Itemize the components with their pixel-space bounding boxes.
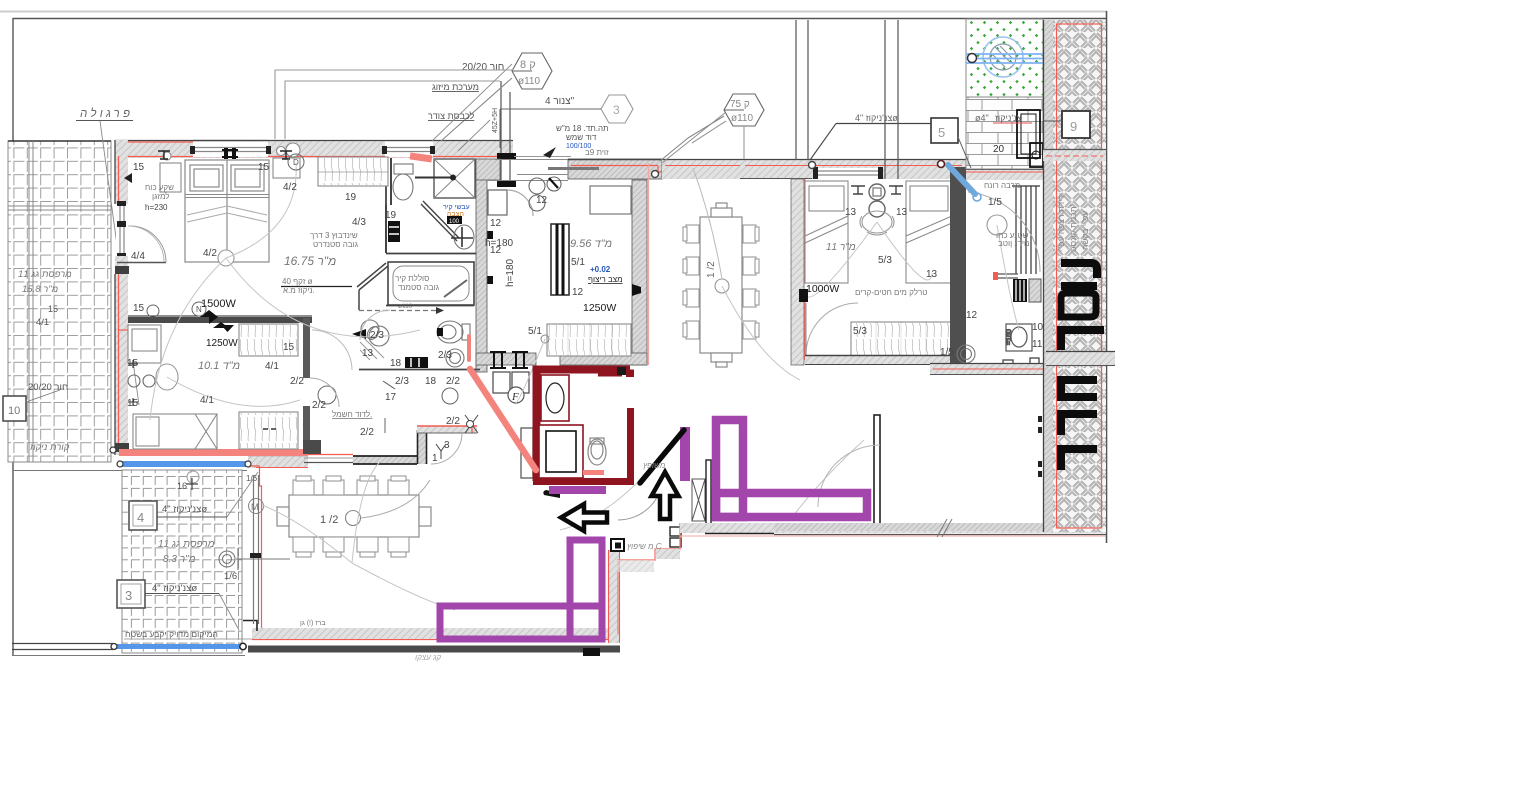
- svg-text:h=180: h=180: [505, 258, 516, 287]
- svg-text:ø4": ø4": [975, 113, 989, 123]
- svg-text:קורת ניקוז: קורת ניקוז: [30, 442, 70, 453]
- svg-text:מ"ר 16.75: מ"ר 16.75: [284, 254, 336, 268]
- svg-text:5/1: 5/1: [528, 326, 542, 337]
- svg-text:מרפסת גג 11: מרפסת גג 11: [158, 539, 215, 550]
- svg-text:12: 12: [966, 310, 978, 321]
- svg-text:18: 18: [425, 376, 437, 387]
- svg-text:1/5: 1/5: [940, 347, 954, 358]
- svg-text:עפ"י בקשה: עפ"י בקשה: [1080, 211, 1090, 250]
- svg-text:קג עצקו: קג עצקו: [415, 653, 441, 662]
- svg-text:13: 13: [845, 207, 857, 218]
- svg-text:צנ'ניקוז: צנ'ניקוז: [995, 113, 1022, 123]
- svg-text:=160: =160: [1006, 329, 1013, 345]
- svg-text:4/2: 4/2: [283, 182, 297, 193]
- svg-text:מ"ד 9.56: מ"ד 9.56: [570, 238, 612, 250]
- svg-text:+0.02: +0.02: [590, 265, 611, 274]
- svg-text:1 /2: 1 /2: [706, 261, 717, 278]
- svg-text:למזגן: למזגן: [152, 192, 170, 201]
- svg-text:45Z+5H: 45Z+5H: [492, 108, 499, 133]
- svg-text:20/20 חור: 20/20 חור: [462, 62, 504, 73]
- svg-text:1/6: 1/6: [224, 571, 237, 582]
- svg-text:ירידת רצפה עפ"י: ירידת רצפה עפ"י: [1056, 193, 1066, 252]
- svg-text:10: 10: [8, 405, 20, 417]
- svg-text:מ"ר 11: מ"ר 11: [826, 242, 856, 253]
- svg-text:מערכת מיזוג: מערכת מיזוג: [432, 82, 479, 92]
- svg-text:שינדבוץ 3 דרך: שינדבוץ 3 דרך: [310, 231, 358, 240]
- svg-text:19: 19: [345, 192, 357, 203]
- svg-text:15: 15: [48, 304, 58, 314]
- svg-text:20: 20: [993, 144, 1005, 155]
- svg-text:צנ'ניקוז "4ø: צנ'ניקוז "4ø: [855, 113, 898, 123]
- svg-text:טרלק מים חטים-קרים: טרלק מים חטים-קרים: [855, 288, 928, 297]
- svg-text:2/2: 2/2: [446, 376, 460, 387]
- svg-text:11: 11: [1032, 339, 1043, 350]
- svg-text:ברז (!) גן: ברז (!) גן: [300, 620, 326, 627]
- svg-text:מצב ריצוף: מצב ריצוף: [588, 275, 623, 284]
- svg-text:2/2: 2/2: [290, 376, 304, 387]
- svg-text:15: 15: [133, 303, 145, 314]
- svg-text:17: 17: [385, 392, 397, 403]
- svg-text:100: 100: [449, 219, 460, 225]
- svg-text:4: 4: [137, 510, 144, 525]
- svg-text:12: 12: [536, 195, 548, 206]
- svg-text:1/5: 1/5: [988, 197, 1002, 208]
- svg-text:19: 19: [385, 210, 397, 221]
- svg-text:5/3: 5/3: [853, 326, 867, 337]
- svg-text:15.8 מ"ר: 15.8 מ"ר: [22, 284, 58, 295]
- svg-text:13: 13: [896, 207, 908, 218]
- svg-text:מרפסת גג 11: מרפסת גג 11: [18, 269, 72, 280]
- svg-text:5: 5: [938, 125, 945, 140]
- svg-text:תכנית קונסט': תכנית קונסט': [1068, 204, 1078, 252]
- svg-text:16: 16: [177, 481, 187, 491]
- svg-text:15: 15: [127, 358, 139, 369]
- svg-text:2/3: 2/3: [438, 350, 452, 361]
- svg-text:1250W: 1250W: [206, 338, 238, 349]
- svg-text:75 ק: 75 ק: [730, 99, 750, 110]
- svg-text:9: 9: [1070, 119, 1077, 134]
- svg-text:2/2: 2/2: [360, 427, 374, 438]
- svg-text:זקף 40 ø: זקף 40 ø: [282, 277, 313, 286]
- svg-text:4/2: 4/2: [203, 248, 217, 259]
- svg-text:2/2: 2/2: [446, 416, 460, 427]
- svg-text:15: 15: [283, 342, 295, 353]
- svg-text:18: 18: [390, 358, 402, 369]
- svg-text:13: 13: [362, 348, 374, 359]
- svg-text:3: 3: [613, 103, 620, 117]
- svg-text:4/1: 4/1: [265, 361, 279, 372]
- svg-text:8 ק: 8 ק: [520, 59, 536, 71]
- svg-text:עבשי קיר: עבשי קיר: [443, 204, 470, 211]
- svg-text:4/1: 4/1: [200, 395, 214, 406]
- svg-text:4/3: 4/3: [352, 217, 366, 228]
- svg-text:12: 12: [572, 287, 584, 298]
- svg-text:M: M: [251, 502, 259, 512]
- svg-text:8.3 מ"ר: 8.3 מ"ר: [163, 554, 196, 565]
- svg-text:ø110: ø110: [518, 76, 540, 87]
- svg-text:צנ'ניקוז "4ø: צנ'ניקוז "4ø: [152, 583, 197, 594]
- svg-text:2/2: 2/2: [312, 400, 326, 411]
- svg-text:3: 3: [444, 440, 450, 451]
- svg-text:4/1: 4/1: [36, 317, 49, 328]
- svg-text:15: 15: [127, 398, 139, 409]
- svg-text:תה.תד. 18 מ"ש: תה.תד. 18 מ"ש: [556, 124, 609, 133]
- svg-text:לדוד חשמל.: לדוד חשמל.: [332, 410, 372, 419]
- svg-text:צנור 4": צנור 4": [545, 96, 575, 107]
- svg-text:סוללת קיר: סוללת קיר: [395, 274, 429, 283]
- svg-text:15: 15: [258, 162, 270, 173]
- svg-text:3: 3: [125, 588, 132, 603]
- svg-text:1/6: 1/6: [246, 474, 258, 483]
- svg-text:h=180: h=180: [485, 238, 514, 249]
- svg-text:םידנ ןוטב: םידנ ןוטב: [998, 239, 1029, 248]
- svg-text:20/20 חור: 20/20 חור: [28, 382, 68, 393]
- svg-text:1000W: 1000W: [806, 283, 839, 295]
- svg-text:מ"ד 10.1: מ"ד 10.1: [198, 360, 240, 372]
- svg-text:משופץ: משופץ: [643, 461, 666, 470]
- svg-text:מרבה רונח: מרבה רונח: [984, 181, 1020, 190]
- svg-text:גובה סטמנד: גובה סטמנד: [398, 283, 440, 292]
- svg-text:12: 12: [490, 218, 502, 229]
- svg-text:2/3: 2/3: [395, 376, 409, 387]
- svg-text:ø110: ø110: [731, 113, 753, 124]
- svg-text:צנ'ניקוז "4ø: צנ'ניקוז "4ø: [162, 504, 207, 515]
- svg-text:1250W: 1250W: [583, 302, 616, 314]
- svg-text:1 /2: 1 /2: [320, 514, 338, 526]
- svg-text:ø110: ø110: [398, 303, 413, 310]
- svg-text:זוית 9ב: זוית 9ב: [585, 148, 609, 157]
- svg-text:המיקום מדויק יקבע בשטח: המיקום מדויק יקבע בשטח: [125, 629, 218, 639]
- svg-text:h=230: h=230: [145, 203, 168, 212]
- svg-text:לכבסת צודר: לכבסת צודר: [428, 111, 474, 121]
- svg-text:ניקוז מ.א.: ניקוז מ.א.: [283, 286, 315, 295]
- svg-text:2/3: 2/3: [370, 330, 384, 341]
- svg-text:10: 10: [1032, 322, 1044, 333]
- svg-text:5/3: 5/3: [878, 255, 892, 266]
- svg-text:4/4: 4/4: [131, 251, 145, 262]
- svg-text:5/1: 5/1: [571, 257, 585, 268]
- svg-text:15: 15: [133, 162, 145, 173]
- svg-text:N: N: [196, 305, 202, 314]
- svg-text:שקע כוח: שקע כוח: [145, 183, 174, 192]
- svg-text:1: 1: [432, 453, 438, 464]
- svg-text:D: D: [293, 158, 299, 167]
- svg-text:גובה סטנדרט: גובה סטנדרט: [313, 240, 359, 249]
- svg-text:13: 13: [926, 269, 938, 280]
- svg-text:מ שיפוץ C: מ שיפוץ C: [627, 542, 662, 551]
- svg-text:דוד שמש: דוד שמש: [566, 133, 597, 142]
